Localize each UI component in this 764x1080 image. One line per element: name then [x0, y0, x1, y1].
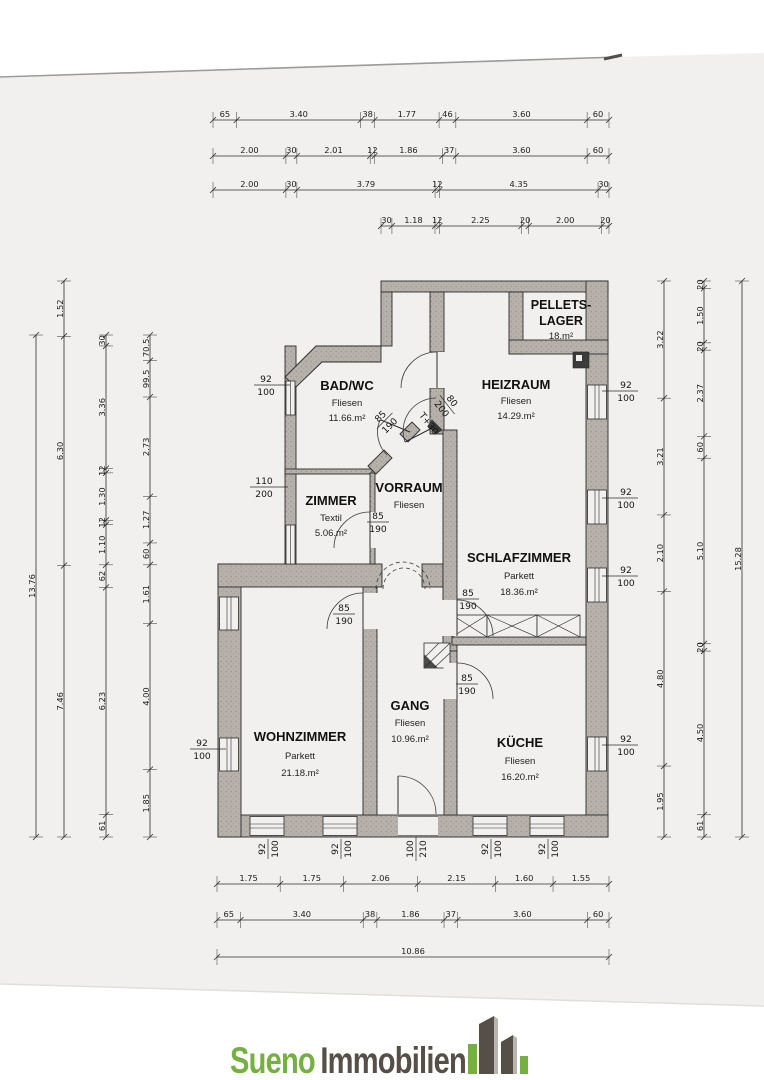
wall-heizraum-west-upper [430, 292, 444, 352]
svg-text:92: 92 [620, 380, 632, 391]
window-bottom-3 [473, 817, 507, 836]
dim-label: 2.00 [240, 145, 258, 155]
window-bottom-1 [250, 817, 284, 836]
dim-label: 4.50 [695, 724, 705, 742]
svg-text:Parkett: Parkett [504, 571, 534, 582]
dim-label: 3.60 [512, 145, 530, 155]
dim-label: 10.86 [401, 946, 425, 956]
dim-label: 30 [286, 179, 297, 189]
dim-label: 30 [381, 215, 392, 225]
window-schlafzimmer-1 [588, 490, 607, 524]
svg-text:100: 100 [270, 840, 281, 858]
dim-label: 3.60 [513, 909, 531, 919]
room-wohnzimmer: WOHNZIMMER [254, 729, 347, 744]
svg-text:16.20.m²: 16.20.m² [501, 772, 539, 783]
svg-text:190: 190 [335, 616, 353, 627]
dim-label: 30 [598, 179, 609, 189]
window-kueche [588, 737, 607, 771]
dim-label: 70.5 [141, 339, 151, 357]
svg-text:100: 100 [257, 387, 275, 398]
svg-text:92: 92 [620, 487, 632, 498]
dim-label: 5.10 [695, 542, 705, 560]
svg-text:110: 110 [255, 476, 273, 487]
dim-label: 12 [432, 215, 443, 225]
svg-text:92: 92 [330, 843, 341, 855]
dim-label: 1.18 [404, 215, 422, 225]
room-gang: GANG [391, 698, 430, 713]
scanned-floorplan-page: 653.40381.77463.6060 2.00302.01121.86373… [0, 0, 764, 1080]
svg-text:100: 100 [617, 578, 635, 589]
window-left-1 [220, 597, 239, 630]
dim-label: 2.10 [655, 544, 665, 562]
logo: SuenoImmobilien [230, 1016, 528, 1080]
svg-text:11.66.m²: 11.66.m² [329, 413, 366, 424]
svg-text:92: 92 [480, 843, 491, 855]
dim-label: 37 [445, 909, 456, 919]
dim-label: 12 [367, 145, 378, 155]
dim-label: 1.86 [399, 145, 417, 155]
dim-label: 65 [223, 909, 234, 919]
svg-text:5.06.m²: 5.06.m² [315, 528, 347, 539]
dim-label: 61 [97, 821, 107, 832]
logo-wordmark: SuenoImmobilien [230, 1040, 466, 1080]
dim-label: 4.35 [510, 179, 528, 189]
dim-label: 7.46 [55, 692, 65, 710]
dim-label: 1.75 [239, 873, 257, 883]
dim-label: 1.50 [695, 306, 705, 324]
dim-label: 1.52 [55, 299, 65, 317]
dim-label: 4.00 [141, 687, 151, 705]
svg-text:190: 190 [459, 601, 477, 612]
dim-label: 1.86 [401, 909, 419, 919]
svg-text:Fliesen: Fliesen [394, 500, 425, 511]
window-bottom-4 [530, 817, 564, 836]
wall-upper-left [381, 292, 392, 346]
wall-pellets-south [509, 340, 608, 354]
svg-text:92: 92 [620, 734, 632, 745]
logo-buildings-icon [468, 1016, 528, 1074]
dim-label: 1.10 [97, 536, 107, 554]
window-left-2 [220, 738, 239, 771]
svg-text:100: 100 [493, 840, 504, 858]
svg-text:18.36.m²: 18.36.m² [500, 587, 538, 598]
dim-label: 1.75 [303, 873, 321, 883]
dim-label: 6.30 [55, 442, 65, 460]
dim-label: 2.01 [324, 145, 342, 155]
window-zimmer [286, 525, 295, 564]
svg-text:Fliesen: Fliesen [395, 718, 426, 729]
svg-text:100: 100 [550, 840, 561, 858]
dim-label: 38 [365, 909, 376, 919]
dim-label: 6.23 [97, 692, 107, 710]
dim-label: 2.00 [556, 215, 574, 225]
wall-top [381, 281, 608, 292]
room-vorraum: VORRAUM [375, 480, 442, 495]
room-kueche: KÜCHE [497, 735, 544, 750]
dim-label: 60 [593, 109, 604, 119]
dim-label: 60 [593, 909, 604, 919]
svg-text:Fliesen: Fliesen [501, 396, 532, 407]
dim-label: 99.5 [141, 370, 151, 388]
dim-label: 3.36 [97, 398, 107, 416]
wall-schlafzimmer-kueche [452, 637, 586, 645]
svg-text:100: 100 [405, 840, 416, 858]
dim-label: 65 [220, 109, 231, 119]
svg-text:190: 190 [369, 524, 387, 535]
room-heizraum: HEIZRAUM [482, 377, 551, 392]
svg-text:Fliesen: Fliesen [505, 756, 536, 767]
dim-label: 1.77 [398, 109, 416, 119]
dim-label: 12 [432, 179, 443, 189]
svg-text:100: 100 [617, 747, 635, 758]
dim-label: 1.61 [141, 585, 151, 603]
dim-label: 13.76 [27, 574, 37, 598]
svg-text:190: 190 [458, 686, 476, 697]
svg-text:Fliesen: Fliesen [332, 398, 363, 409]
dim-label: 2.25 [471, 215, 489, 225]
svg-text:100: 100 [617, 500, 635, 511]
dim-label: 3.60 [512, 109, 530, 119]
window-bad [286, 381, 295, 415]
wall-arch-stub [422, 564, 443, 587]
room-schlafzimmer: SCHLAFZIMMER [467, 550, 572, 565]
svg-text:14.29.m²: 14.29.m² [497, 411, 535, 422]
svg-text:100: 100 [193, 751, 211, 762]
room-zimmer: ZIMMER [305, 493, 357, 508]
window-bottom-2 [323, 817, 357, 836]
dim-label: 30 [286, 145, 297, 155]
svg-text:21.18.m²: 21.18.m² [281, 768, 319, 779]
dim-label: 1.27 [141, 511, 151, 529]
dim-label: 2.37 [695, 384, 705, 402]
svg-text:100: 100 [617, 393, 635, 404]
svg-text:210: 210 [418, 840, 429, 858]
svg-text:10.96.m²: 10.96.m² [391, 734, 429, 745]
dim-label: 46 [442, 109, 453, 119]
svg-text:92: 92 [257, 843, 268, 855]
logo-word-immobilien: Immobilien [320, 1040, 466, 1080]
dim-label: 37 [444, 145, 455, 155]
svg-text:100: 100 [343, 840, 354, 858]
dim-label: 1.85 [141, 794, 151, 812]
dim-label: 3.40 [289, 109, 307, 119]
dim-label: 3.40 [293, 909, 311, 919]
dim-label: 4.80 [655, 669, 665, 687]
dim-label: 38 [362, 109, 373, 119]
svg-text:85: 85 [372, 511, 384, 522]
svg-text:18.m²: 18.m² [549, 331, 573, 342]
dim-label: 1.55 [572, 873, 590, 883]
svg-text:92: 92 [196, 738, 208, 749]
dim-label: 3.21 [655, 447, 665, 465]
svg-text:LAGER: LAGER [539, 314, 583, 328]
svg-text:Textil: Textil [320, 513, 342, 524]
room-pellets-lager: PELLETS- [531, 298, 591, 312]
dim-label: 1.30 [97, 487, 107, 505]
svg-text:Parkett: Parkett [285, 751, 315, 762]
svg-text:85: 85 [338, 603, 350, 614]
flue-inner [576, 355, 582, 361]
dim-label: 60 [695, 442, 705, 453]
dim-label: 2.15 [447, 873, 465, 883]
dim-label: 12 [97, 465, 107, 476]
svg-text:200: 200 [255, 489, 273, 500]
svg-text:92: 92 [260, 374, 272, 385]
dim-label: 62 [97, 571, 107, 582]
dim-label: 15.28 [733, 547, 743, 571]
svg-text:85: 85 [461, 673, 473, 684]
wall-bad-zimmer-divider [285, 469, 372, 474]
dim-label: 12 [97, 517, 107, 528]
dim-label: 30 [97, 335, 107, 346]
dim-label: 3.79 [357, 179, 375, 189]
dim-label: 60 [141, 549, 151, 560]
dim-label: 2.73 [141, 438, 151, 456]
window-schlafzimmer-2 [588, 568, 607, 602]
room-bad-wc: BAD/WC [320, 378, 374, 393]
logo-word-sueno: Sueno [230, 1040, 315, 1080]
svg-text:92: 92 [537, 843, 548, 855]
dim-label: 2.00 [240, 179, 258, 189]
floorplan-canvas: 653.40381.77463.6060 2.00302.01121.86373… [0, 0, 764, 1080]
wall-wohnzimmer-top [218, 564, 382, 587]
svg-text:92: 92 [620, 565, 632, 576]
window-heizraum [588, 385, 607, 419]
dim-label: 2.06 [371, 873, 389, 883]
dim-label: 1.60 [515, 873, 533, 883]
dim-label: 61 [695, 821, 705, 832]
dim-label: 3.22 [655, 330, 665, 348]
svg-text:85: 85 [462, 588, 474, 599]
dim-label: 60 [593, 145, 604, 155]
dim-label: 1.95 [655, 792, 665, 810]
